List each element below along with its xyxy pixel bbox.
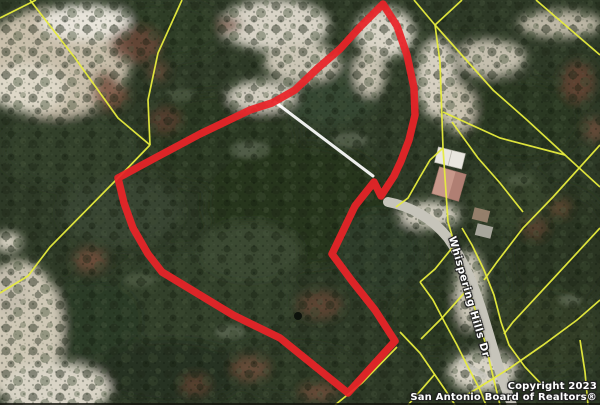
copyright-notice: Copyright 2023 San Antonio Board of Real…: [410, 382, 597, 404]
copyright-line-2: San Antonio Board of Realtors®: [410, 393, 597, 404]
satellite-imagery: [0, 0, 600, 405]
aerial-parcel-map: Whispering Hills Dr Copyright 2023 San A…: [0, 0, 600, 405]
terrain-forest: [0, 0, 600, 405]
